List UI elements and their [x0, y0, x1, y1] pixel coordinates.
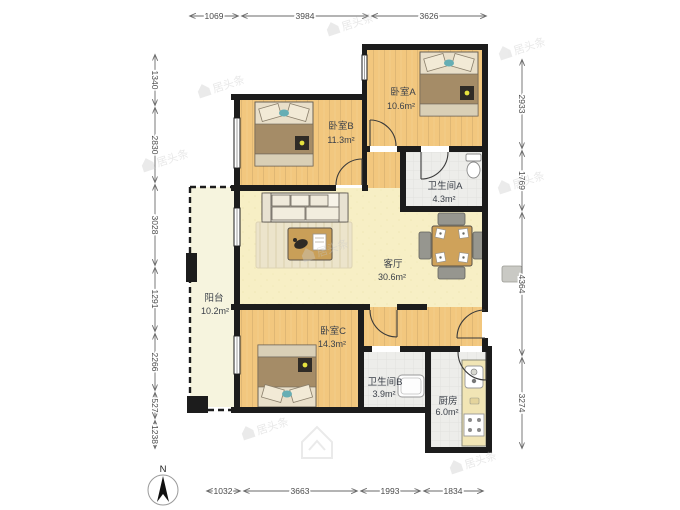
watermark-text: 居头条 — [255, 414, 291, 438]
balcony-area: 10.2m² — [201, 306, 229, 316]
dimension-label: 527 — [150, 398, 160, 412]
bedroom-c-area: 14.3m² — [318, 339, 346, 349]
bedroom-a-label: 卧室A — [390, 86, 416, 98]
watermark-text: 居头条 — [511, 168, 547, 192]
dimension-label: 2933 — [517, 95, 527, 114]
watermark-logo-icon — [302, 427, 332, 458]
corridor-floor — [364, 307, 482, 346]
balcony-slider — [234, 208, 240, 246]
watermark-house-icon — [140, 156, 155, 172]
watermark-house-icon — [448, 458, 463, 474]
dimension-label: 1834 — [444, 486, 463, 496]
north-label: N — [160, 464, 167, 475]
dimension-label: 2830 — [150, 136, 160, 155]
floor-plan: 卧室A 10.6m² 卧室B 11.3m² 卫生间A 4.3m² 客厅 30.6… — [0, 0, 680, 510]
living-area: 30.6m² — [378, 272, 406, 282]
bed-c-icon — [258, 345, 316, 407]
watermark-house-icon — [196, 82, 211, 98]
watermark-house-icon — [325, 20, 340, 36]
dimension-label: 3626 — [420, 11, 439, 21]
dimension-label: 1993 — [381, 486, 400, 496]
dimension-top-chain: 1069 3984 3626 — [190, 11, 486, 21]
kitchen-label: 厨房 — [438, 395, 457, 407]
bath-a-area: 4.3m² — [432, 194, 455, 204]
bedroom-c-window — [234, 336, 240, 374]
dimension-bottom-chain: 1032 3663 1993 1834 — [207, 486, 483, 496]
toilet-icon — [466, 154, 481, 178]
dimension-label: 1291 — [150, 290, 160, 309]
bed-a-icon — [420, 52, 478, 116]
dimension-label: 2266 — [150, 353, 160, 372]
dimension-label: 3663 — [291, 486, 310, 496]
watermark-house-icon — [496, 178, 511, 194]
watermark-text: 居头条 — [340, 10, 376, 34]
watermark-text: 居头条 — [512, 34, 548, 58]
balcony-label: 阳台 — [204, 292, 223, 304]
kitchen-counter-icon — [462, 360, 486, 446]
kitchen-area: 6.0m² — [435, 407, 458, 417]
north-compass: N — [148, 464, 178, 505]
hallway-floor — [367, 152, 400, 191]
bedroom-b-window — [234, 118, 240, 168]
bath-b-label: 卫生间B — [368, 376, 403, 388]
floor-plan-canvas: 卧室A 10.6m² 卧室B 11.3m² 卫生间A 4.3m² 客厅 30.6… — [0, 0, 680, 510]
sofa-icon — [262, 193, 348, 222]
dimension-label: 1238 — [150, 425, 160, 444]
bedroom-b-label: 卧室B — [328, 120, 353, 132]
watermark-text: 居头条 — [211, 72, 247, 96]
dimension-label: 3028 — [150, 216, 160, 235]
dimension-label: 1032 — [214, 486, 233, 496]
dimension-label: 1069 — [205, 11, 224, 21]
living-label: 客厅 — [383, 258, 403, 270]
watermark-house-icon — [497, 44, 512, 60]
dimension-left-chain: 1340 2830 3028 1291 2266 527 1238 — [150, 55, 160, 448]
bedroom-c-label: 卧室C — [320, 325, 346, 337]
bed-b-icon — [255, 102, 313, 166]
watermark-house-icon — [240, 424, 255, 440]
bedroom-a-window — [362, 55, 367, 80]
dimension-right-chain: 2933 1769 4364 3274 — [517, 60, 527, 448]
bedroom-b-area: 11.3m² — [327, 135, 354, 145]
bath-a-label: 卫生间A — [428, 180, 464, 192]
dimension-label: 3274 — [517, 394, 527, 413]
bedroom-a-area: 10.6m² — [387, 101, 415, 111]
bath-b-area: 3.9m² — [372, 389, 395, 399]
dimension-label: 4364 — [517, 275, 527, 294]
dimension-label: 1340 — [150, 71, 160, 90]
dimension-label: 3984 — [296, 11, 315, 21]
